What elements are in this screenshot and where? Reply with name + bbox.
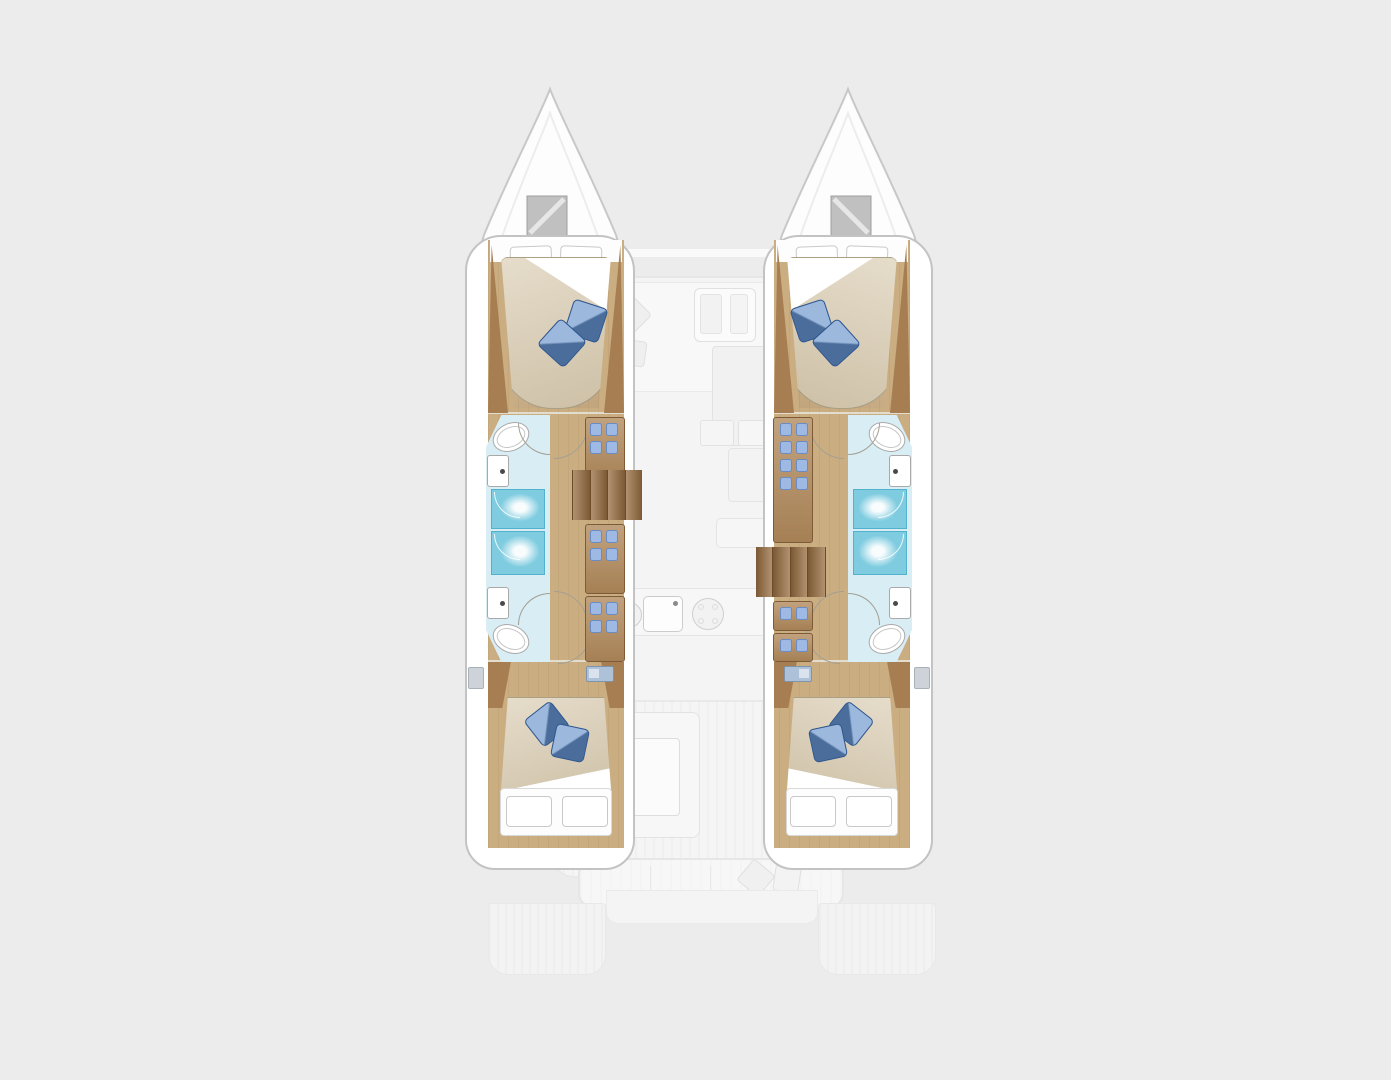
stove-burner-icon: [692, 598, 724, 630]
wardrobe-unit: [585, 596, 625, 662]
wardrobe-unit: [773, 601, 813, 631]
port-hull: [460, 85, 640, 980]
table-leaf: [700, 294, 722, 334]
table-leaf: [730, 294, 748, 334]
sink-icon: [889, 587, 911, 619]
companionway-stairs: [572, 470, 642, 520]
sink-icon: [487, 455, 509, 487]
bulkhead: [774, 412, 910, 414]
pillow: [562, 796, 608, 827]
bow: [758, 85, 938, 253]
bulkhead: [488, 412, 624, 414]
cabin-window: [586, 666, 614, 682]
blue-pillow: [808, 723, 848, 763]
hull-window: [468, 667, 484, 689]
hull-window: [914, 667, 930, 689]
companionway-stairs: [756, 547, 826, 597]
blue-pillow: [550, 723, 590, 763]
galley-sink-icon: [643, 596, 683, 632]
sofa-cushion: [700, 420, 734, 446]
pillow: [506, 796, 552, 827]
catamaran-floorplan: [0, 0, 1391, 1080]
wardrobe-unit: [773, 633, 813, 662]
shower-stall: [853, 489, 907, 529]
sink-icon: [889, 455, 911, 487]
cabin-window: [784, 666, 812, 682]
wardrobe-unit: [585, 524, 625, 594]
starboard-hull: [758, 85, 938, 980]
shower-stall: [491, 531, 545, 575]
shower-stall: [491, 489, 545, 529]
sink-icon: [487, 587, 509, 619]
pillow: [790, 796, 836, 827]
shower-stall: [853, 531, 907, 575]
bow: [460, 85, 640, 253]
pillow: [846, 796, 892, 827]
wardrobe-unit: [773, 417, 813, 543]
